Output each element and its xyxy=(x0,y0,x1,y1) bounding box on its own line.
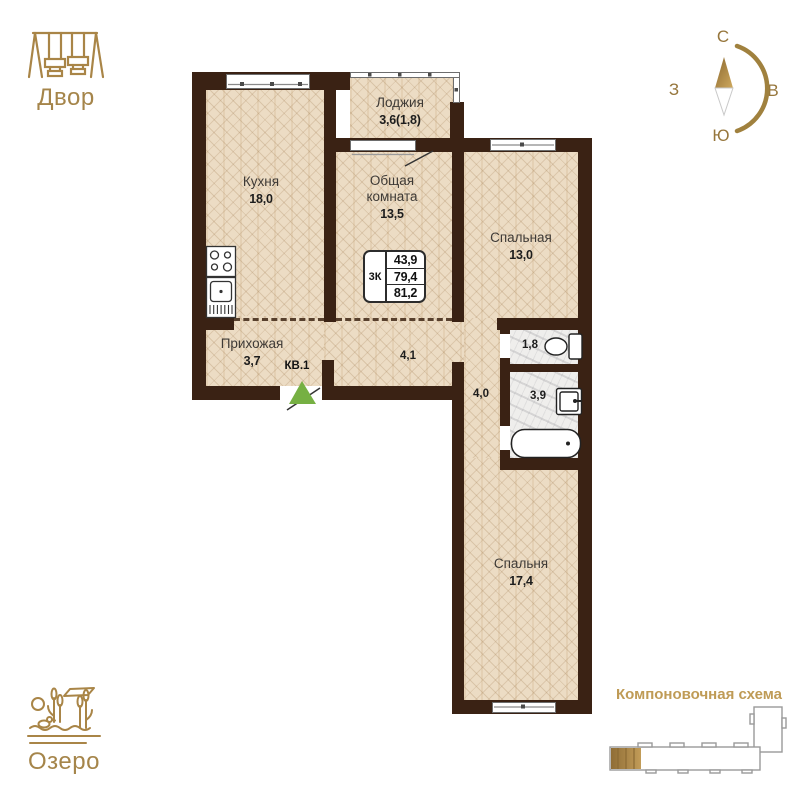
loggia-name: Лоджия xyxy=(376,95,424,111)
apartment-areas: 43,9 79,4 81,2 xyxy=(387,252,424,301)
hallway-label: Прихожая 3,7 xyxy=(221,336,284,368)
area-living-value: 43,9 xyxy=(387,252,424,268)
toilet-icon xyxy=(545,334,582,359)
corridor2-area: 4,0 xyxy=(473,388,489,400)
apartment-type: 3К xyxy=(365,252,387,301)
kitchen-label: Кухня 18,0 xyxy=(243,174,279,206)
bathroom-sink-icon xyxy=(557,389,582,415)
wc-area: 1,8 xyxy=(522,339,538,351)
apartment-info-box: 3К 43,9 79,4 81,2 xyxy=(363,250,426,303)
bathtub-icon xyxy=(512,430,581,458)
bedroom1-label: Спальная 13,0 xyxy=(490,230,552,262)
kitchen-sink-icon xyxy=(207,278,236,318)
bedroom2-name: Спальня xyxy=(494,556,548,572)
bedroom2-area: 17,4 xyxy=(494,574,548,588)
kitchen-name: Кухня xyxy=(243,174,279,190)
hallway-name: Прихожая xyxy=(221,336,284,352)
loggia-area: 3,6(1,8) xyxy=(376,113,424,127)
layout-scheme-title: Компоновочная схема xyxy=(608,686,790,703)
layout-scheme-icon xyxy=(608,702,790,777)
unit-label: КВ.1 xyxy=(285,360,310,372)
bedroom1-name: Спальная xyxy=(490,230,552,246)
bedroom2-label: Спальня 17,4 xyxy=(494,556,548,588)
balcony-door-swing-line xyxy=(405,151,433,166)
bedroom1-area: 13,0 xyxy=(490,248,552,262)
hallway-area: 3,7 xyxy=(221,354,284,368)
lake-label: Озеро xyxy=(18,748,110,776)
highlighted-unit-section xyxy=(611,748,641,769)
loggia-label: Лоджия 3,6(1,8) xyxy=(376,95,424,127)
lake-icon xyxy=(22,682,107,748)
area-total-value: 81,2 xyxy=(387,284,424,301)
living-room-label: Общая комната 13,5 xyxy=(344,173,440,221)
bathroom-area: 3,9 xyxy=(530,390,546,402)
area-main-value: 79,4 xyxy=(387,268,424,285)
kitchen-area: 18,0 xyxy=(243,192,279,206)
living-room-area: 13,5 xyxy=(344,207,440,221)
corridor1-area: 4,1 xyxy=(400,350,416,362)
living-room-name: Общая комната xyxy=(344,173,440,205)
stove-icon xyxy=(207,247,236,277)
floor-plan-page: Двор С З В Ю xyxy=(0,0,800,800)
